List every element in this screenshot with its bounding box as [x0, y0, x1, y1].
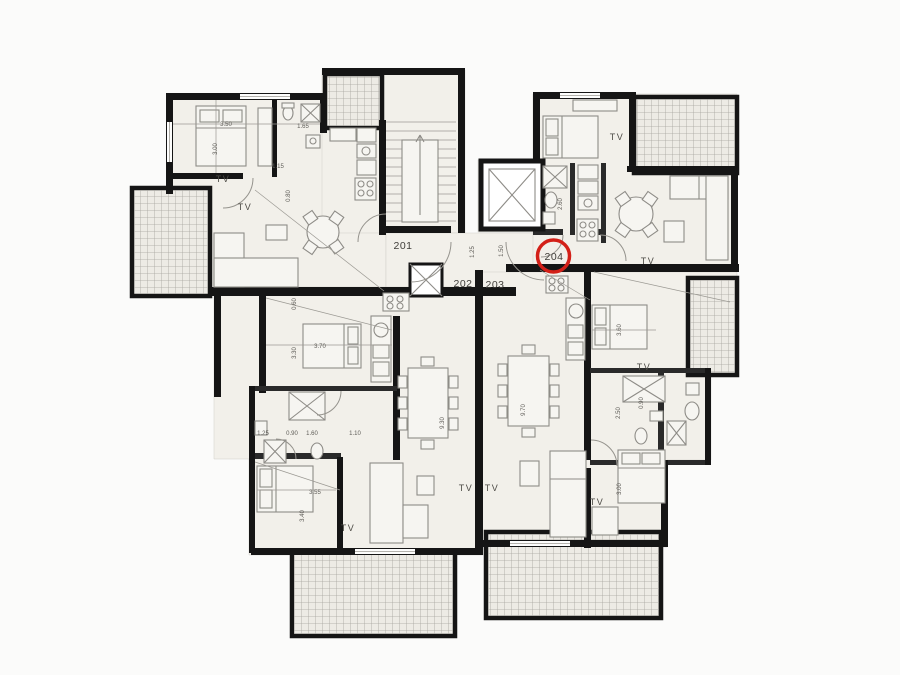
dimension-label-17: 3.40	[300, 510, 306, 522]
balcony-right	[688, 278, 737, 375]
dimension-label-12: 9.70	[521, 404, 527, 416]
dimension-label-0: 3.50	[220, 122, 232, 128]
tv-label-0: TV	[216, 174, 231, 184]
dimension-label-3: 1.15	[272, 164, 284, 170]
dimension-label-22: 1.10	[349, 431, 361, 437]
dimension-label-21: 1.60	[306, 431, 318, 437]
tv-label-1: TV	[238, 202, 253, 212]
dimension-label-15: 0.90	[639, 397, 645, 409]
dimension-label-11: 9.30	[440, 417, 446, 429]
dimension-label-10: 3.30	[292, 347, 298, 359]
dimension-label-7: 1.50	[499, 245, 505, 257]
dimension-label-8: 2.60	[558, 198, 564, 210]
unit-label-201[interactable]: 201	[393, 240, 412, 252]
balcony-bottom-left	[292, 552, 455, 636]
dimension-label-13: 3.60	[617, 324, 623, 336]
dimension-label-6: 1.25	[470, 246, 476, 258]
unit-label-202[interactable]: 202	[453, 278, 472, 290]
dimension-label-5: 0.60	[292, 298, 298, 310]
tv-label-3: TV	[641, 256, 656, 266]
dimension-label-16: 3.55	[309, 490, 321, 496]
tv-label-8: TV	[590, 497, 605, 507]
dimension-label-19: 1.25	[257, 431, 269, 437]
tv-label-5: TV	[341, 523, 356, 533]
dimension-label-9: 3.70	[314, 344, 326, 350]
balcony-left	[132, 188, 210, 296]
dimension-label-14: 2.50	[616, 407, 622, 419]
tv-label-2: TV	[610, 132, 625, 142]
dimension-label-1: 3.00	[213, 143, 219, 155]
unit-label-204[interactable]: 204	[544, 251, 563, 263]
duct-shaft	[410, 264, 442, 296]
elevator	[481, 161, 543, 229]
dimension-label-4: 0.80	[286, 190, 292, 202]
tv-label-6: TV	[459, 483, 474, 493]
tv-label-4: TV	[637, 362, 652, 372]
unit-label-203[interactable]: 203	[485, 279, 504, 291]
dimension-label-18: 3.00	[617, 483, 623, 495]
floor-plan: 3.503.001.651.150.800.601.251.502.603.70…	[0, 0, 900, 675]
tv-label-7: TV	[485, 483, 500, 493]
dimension-label-2: 1.65	[297, 124, 309, 130]
floor-plan-page: 3.503.001.651.150.800.601.251.502.603.70…	[0, 0, 900, 675]
dimension-label-20: 0.90	[286, 431, 298, 437]
balcony-top-right	[634, 97, 737, 173]
balcony-top-center	[325, 74, 382, 128]
